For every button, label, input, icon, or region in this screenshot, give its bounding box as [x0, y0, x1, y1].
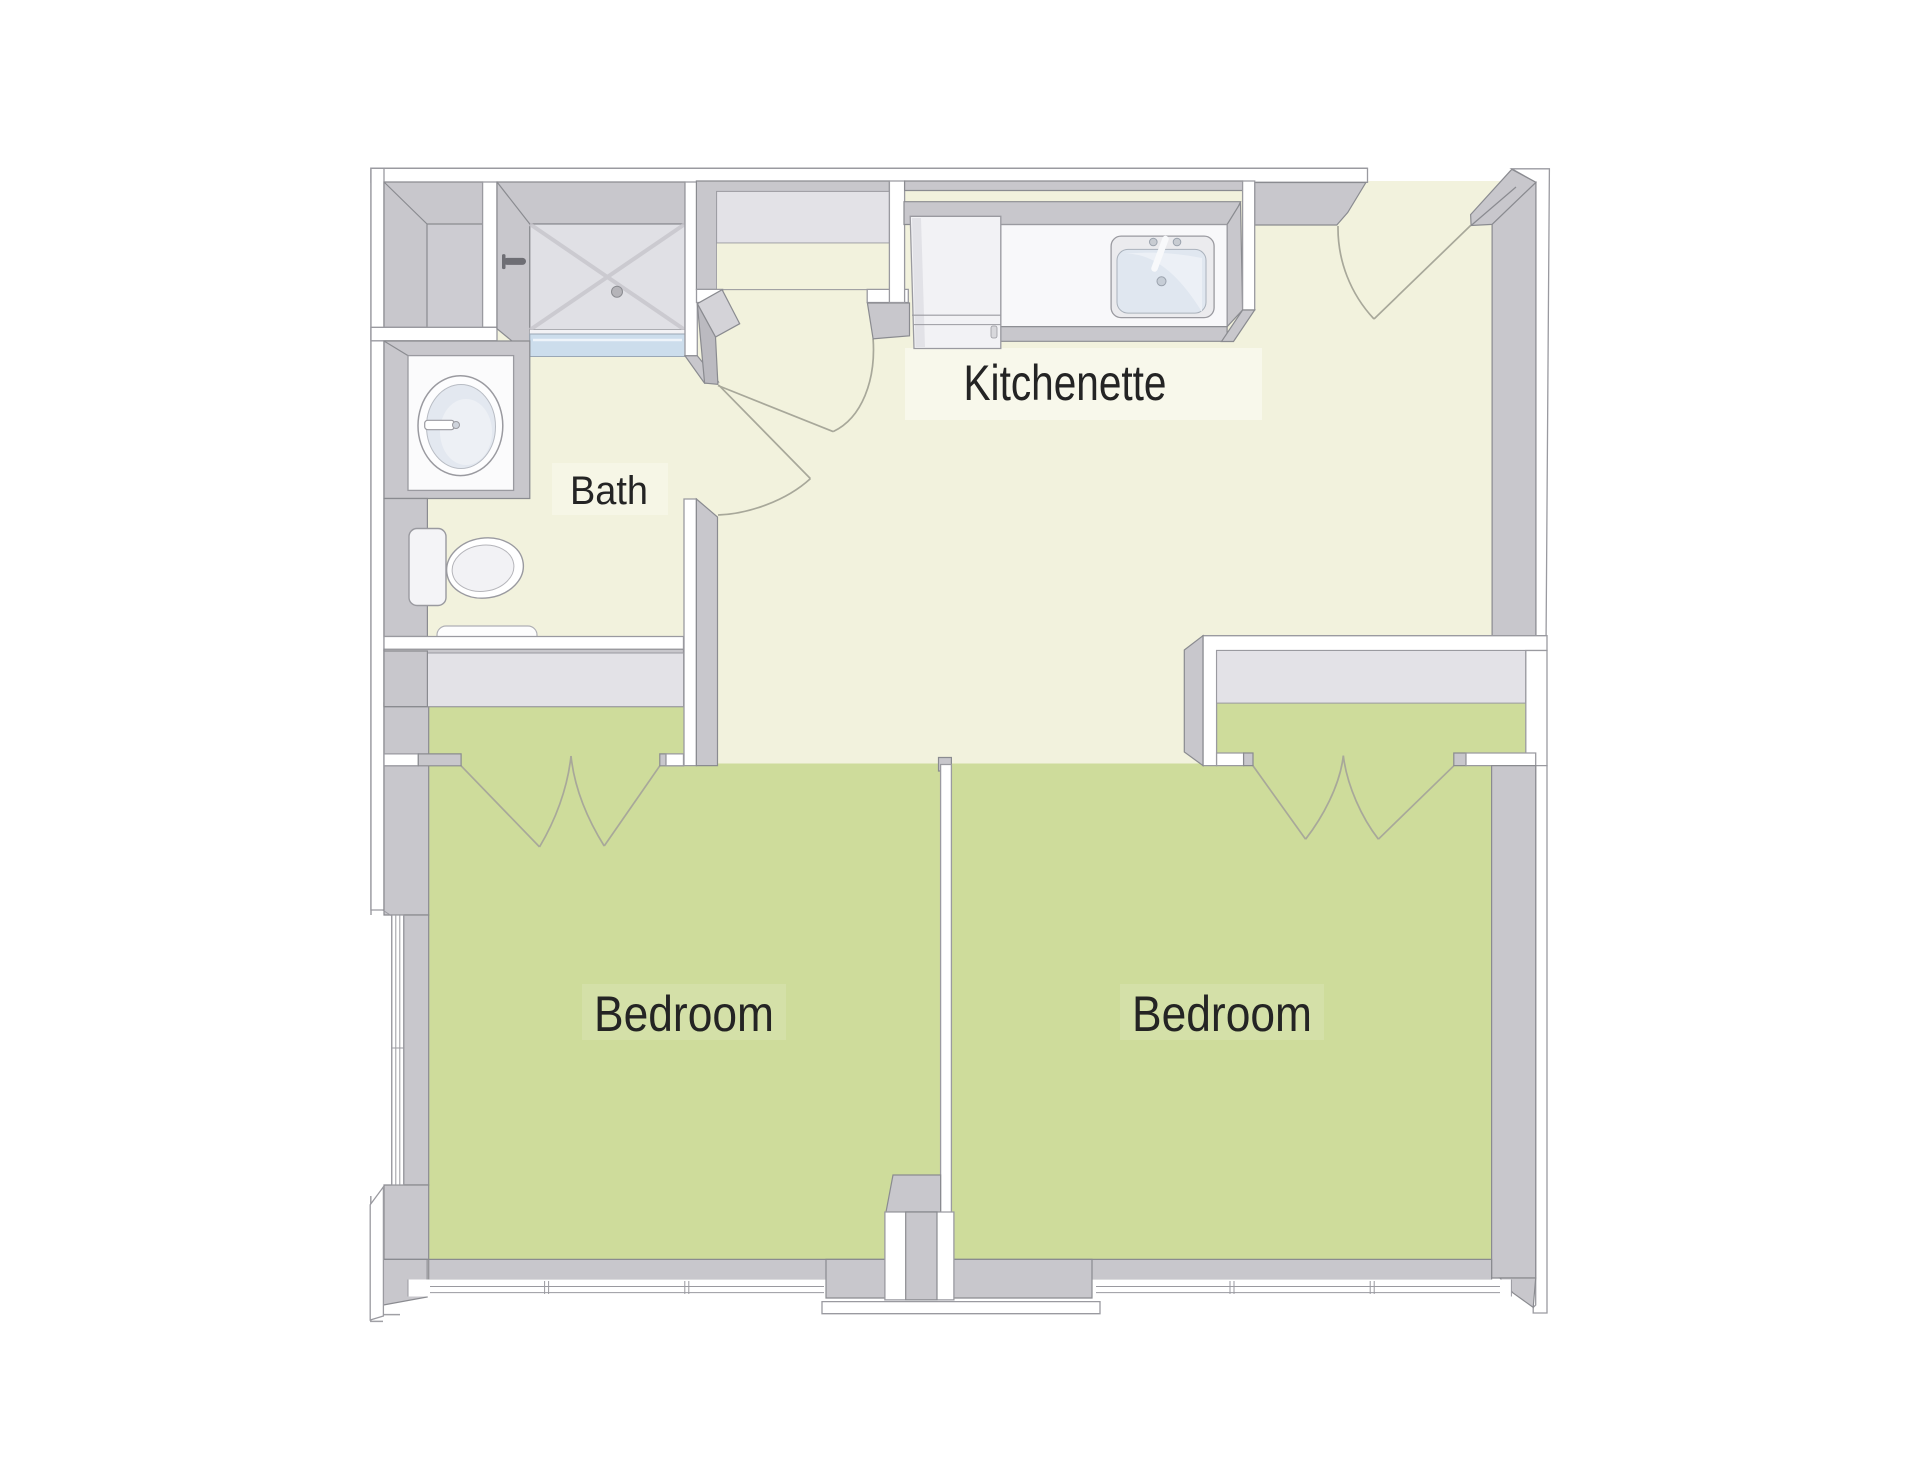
svg-text:Bedroom: Bedroom: [594, 986, 774, 1042]
svg-text:Bedroom: Bedroom: [1132, 986, 1312, 1042]
svg-text:Kitchenette: Kitchenette: [964, 355, 1167, 411]
svg-text:Bath: Bath: [570, 469, 648, 513]
